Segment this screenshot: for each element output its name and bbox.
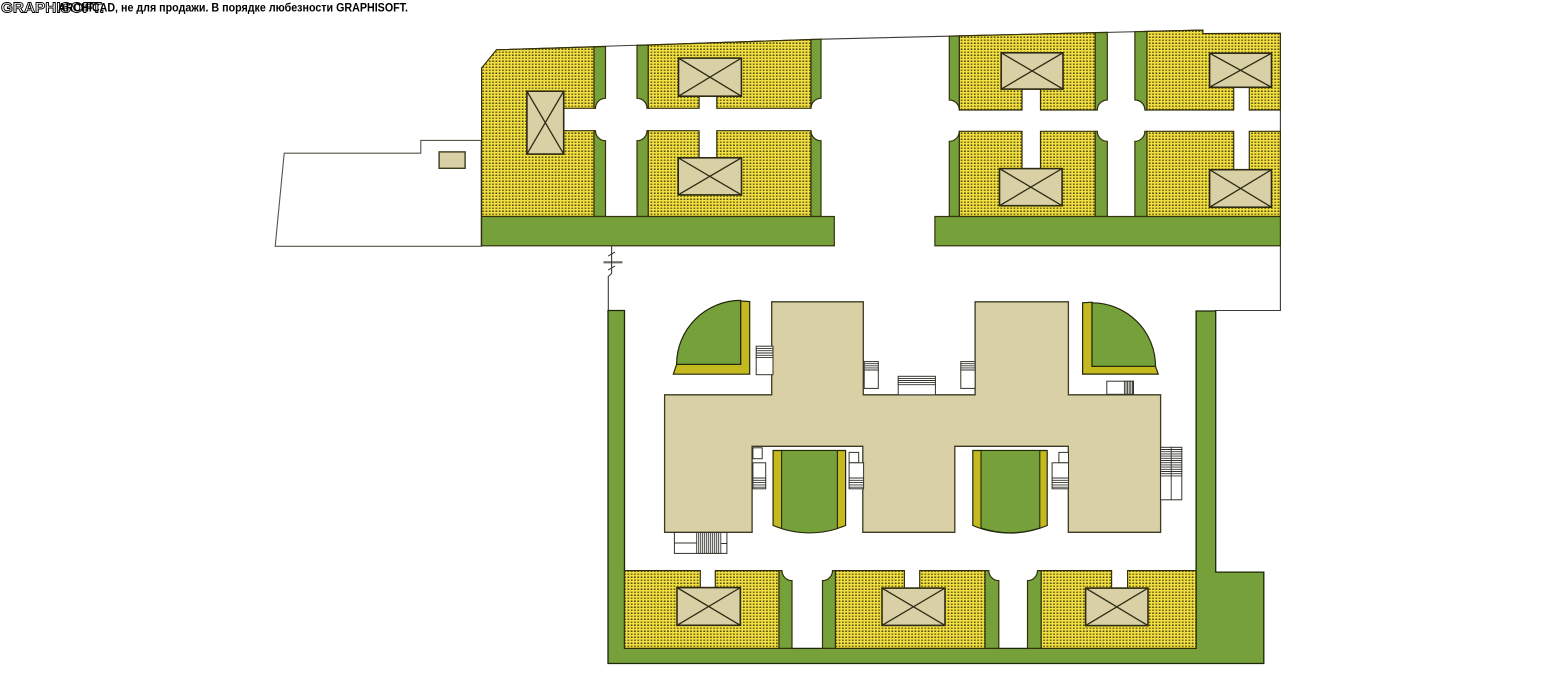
svg-text:ARCHICAD, не для продажи. В по: ARCHICAD, не для продажи. В порядке любе… — [58, 0, 408, 14]
svg-text:GRAPHISOFT.: GRAPHISOFT. — [1, 1, 104, 17]
